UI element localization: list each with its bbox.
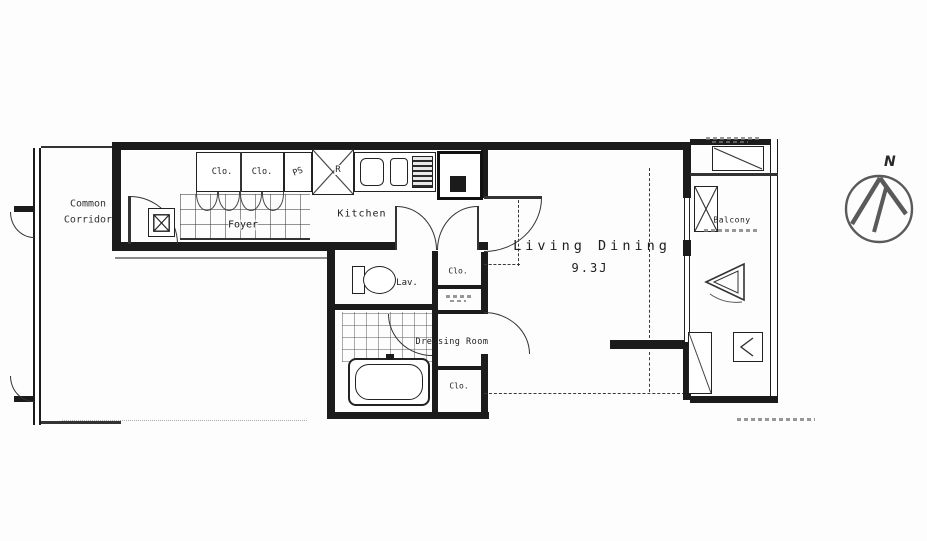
entrance-door-leaf xyxy=(128,196,131,244)
common-corridor-label-line1: Common xyxy=(70,199,106,210)
kitchen-door-arc-left xyxy=(397,206,437,250)
foyer-label: Foyer xyxy=(228,220,258,231)
closet-top-2-label: Clo. xyxy=(252,167,272,177)
living-dashed-south-boundary xyxy=(484,393,690,394)
wall-column-divider xyxy=(432,251,438,419)
window-east-upper xyxy=(684,198,690,240)
wall-hall-south-left xyxy=(335,242,397,250)
wall-dressing-divider xyxy=(436,366,483,370)
ac-unit-diagonal-icon xyxy=(712,146,764,171)
corridor-bottom-line xyxy=(41,421,121,424)
wall-south-bath-block xyxy=(327,412,489,419)
window-east-balcony-door xyxy=(684,256,690,342)
illegible-text-marks-top-right-2 xyxy=(712,141,748,143)
wall-closet-divider-1 xyxy=(436,285,483,289)
wall-east-seg-1 xyxy=(683,142,691,198)
kitchen-counter-hatch xyxy=(412,156,433,188)
balcony-partition xyxy=(690,173,778,176)
illegible-text-marks-utility-2 xyxy=(450,300,466,302)
illegible-text-marks-bottom-right xyxy=(737,418,815,421)
bathtub-faucet xyxy=(386,354,394,360)
neighbor-door-arc-1 xyxy=(10,212,34,238)
closet-mid-label: Clo. xyxy=(448,267,467,276)
dressing-room-label: Dressing Room xyxy=(415,337,488,347)
wall-north xyxy=(112,142,690,150)
foyer-step-edge xyxy=(180,238,310,240)
wall-living-west-lower xyxy=(481,354,488,419)
kitchen-label: Kitchen xyxy=(337,209,386,220)
living-dining-size-label: 9.3J xyxy=(572,261,609,275)
compass-north-icon: N xyxy=(840,152,918,246)
wall-living-west-mid xyxy=(481,252,488,314)
floor-plan-canvas: Common Corridor Clo. Clo. PS R xyxy=(0,0,927,541)
refrigerator-label: R xyxy=(334,165,341,175)
escape-hatch-triangle-icon xyxy=(700,260,750,304)
living-dashed-beam-lower xyxy=(649,352,650,392)
living-dashed-guide-v1 xyxy=(518,200,519,266)
kitchen-door-arc-right xyxy=(437,206,477,250)
bathtub-inner xyxy=(355,364,423,400)
meter-box-cross-icon xyxy=(153,214,170,232)
wall-living-south-right xyxy=(610,340,691,349)
toilet-bowl xyxy=(363,266,396,294)
wall-east-seg-2 xyxy=(683,240,691,256)
refrigerator-cross-icon xyxy=(312,149,354,195)
utility-box-inner-square xyxy=(450,176,466,192)
wall-west-bath-block xyxy=(327,251,335,419)
living-dining-label: Living Dining xyxy=(513,238,671,254)
illegible-text-marks-utility xyxy=(446,295,472,298)
illegible-text-marks-top-right xyxy=(706,137,760,140)
dressing-room-door-arc xyxy=(484,312,530,354)
illegible-text-marks-balcony xyxy=(704,229,758,232)
balcony-wall-south xyxy=(690,396,778,403)
closet-top-1-label: Clo. xyxy=(212,167,232,177)
balcony-drain-icon xyxy=(733,332,763,362)
closet-bottom-label: Clo. xyxy=(449,382,468,391)
corridor-top-line xyxy=(41,146,115,148)
foyer-tiles xyxy=(180,194,310,240)
common-corridor-label-line2: Corridor xyxy=(64,215,112,226)
balcony-utility-tall-cross-icon xyxy=(688,332,712,394)
lavatory-label: Lav. xyxy=(396,278,418,288)
wall-lav-bath-divider xyxy=(335,304,435,310)
building-west-wall xyxy=(33,148,41,425)
balcony-hatch-cross-icon xyxy=(694,186,718,232)
kitchen-door-leaf-right xyxy=(477,206,479,250)
balcony-label: Balcony xyxy=(713,216,750,225)
balcony-rail-east xyxy=(770,139,778,403)
kitchen-stove xyxy=(390,158,408,186)
corridor-dotted-extension xyxy=(62,420,307,421)
kitchen-sink xyxy=(360,158,384,186)
living-dashed-guide-h1 xyxy=(484,264,520,265)
compass-north-label: N xyxy=(884,154,896,170)
wall-west-entrance xyxy=(112,142,121,246)
entrance-outer-line xyxy=(115,257,330,259)
wall-closet-divider-2 xyxy=(436,310,483,314)
closet-top-divider xyxy=(240,152,242,192)
